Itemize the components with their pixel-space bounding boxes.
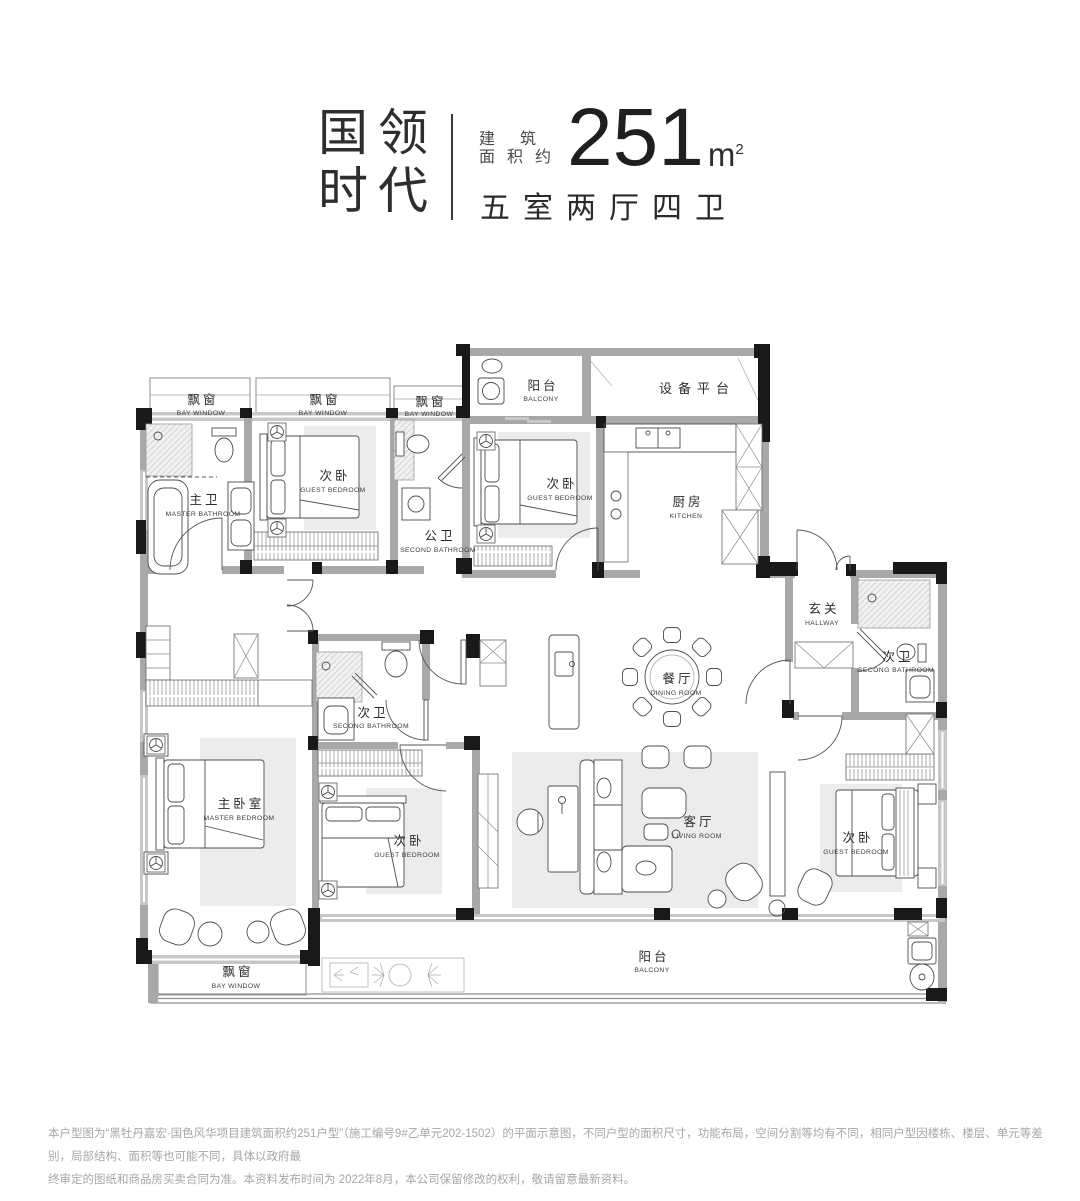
room-label-bay-window-b-en: BAY WINDOW (212, 983, 261, 990)
room-label-guest-bedroom-br-zh: 次卧 (842, 831, 873, 845)
ac-fan-icon (268, 519, 286, 537)
ac-fan-icon (319, 783, 337, 801)
room-label-bay-window-1-zh: 飘窗 (187, 393, 218, 407)
room-label-guest-bedroom-tc-en: GUEST BEDROOM (527, 495, 593, 502)
top-balcony-fixtures (478, 359, 504, 404)
room-label-bay-window-3-zh: 飘窗 (415, 395, 446, 409)
room-label-balcony-top-en: BALCONY (523, 396, 558, 403)
room-label-bay-window-3-en: BAY WINDOW (405, 411, 454, 418)
room-label-guest-bedroom-tl-zh: 次卧 (319, 469, 350, 483)
room-label-balcony-b-en: BALCONY (634, 967, 669, 974)
room-label-master-bathroom-zh: 主卫 (189, 493, 220, 507)
right-second-bathroom-fixtures (858, 580, 934, 702)
kitchen-fixtures (604, 424, 762, 564)
ac-fan-icon (477, 432, 495, 450)
room-label-guest-bedroom-br-en: GUEST BEDROOM (823, 849, 889, 856)
room-label-kitchen-en: KITCHEN (670, 513, 703, 520)
room-label-guest-bedroom-bc-en: GUEST BEDROOM (374, 852, 440, 859)
room-label-second-bathroom-r-en: SECONG BATHROOM (858, 667, 934, 674)
room-label-bay-window-b-zh: 飘窗 (222, 965, 253, 979)
room-label-dining-room-zh: 餐厅 (662, 671, 693, 686)
disclaimer-line1: 本户型图为“黑牡丹嘉宏·国色风华项目建筑面积约251户型”（施工编号9#乙单元2… (48, 1123, 1048, 1169)
ac-fan-icon (147, 854, 165, 872)
room-label-guest-bedroom-bc-zh: 次卧 (393, 834, 424, 848)
disclaimer: 本户型图为“黑牡丹嘉宏·国色风华项目建筑面积约251户型”（施工编号9#乙单元2… (48, 1123, 1048, 1192)
kitchen-island (549, 635, 579, 729)
room-label-bay-window-2-en: BAY WINDOW (299, 410, 348, 417)
room-label-guest-bedroom-tl-en: GUEST BEDROOM (300, 487, 366, 494)
room-label-dining-room-en: DINING ROOM (650, 690, 701, 697)
room-label-hallway-en: HALLWAY (805, 620, 839, 627)
balcony-end-fixtures (908, 922, 936, 990)
floor-plan-drawing: 飘窗 BAY WINDOW 飘窗 BAY WINDOW 飘窗 BAY WINDO… (0, 0, 1080, 1201)
room-label-guest-bedroom-tc-zh: 次卧 (546, 477, 577, 491)
room-label-public-bathroom-zh: 公卫 (424, 529, 455, 543)
room-label-balcony-top-zh: 阳台 (527, 378, 558, 393)
ac-fan-icon (147, 736, 165, 754)
ac-fan-icon (319, 881, 337, 899)
public-bathroom-fixtures (394, 420, 465, 520)
room-label-balcony-b-zh: 阳台 (638, 949, 669, 964)
room-label-living-room-en: LIVING ROOM (672, 833, 722, 840)
floor-plan-page: 国领 时代 建筑 面积约 251 m2 五室两厅四卫 (0, 0, 1080, 1201)
ac-fan-icon (268, 423, 286, 441)
ac-fan-icon (477, 525, 495, 543)
room-label-kitchen-zh: 厨房 (672, 494, 703, 509)
room-label-second-bathroom-l-en: SECONG BATHROOM (333, 723, 409, 730)
disclaimer-line2: 终审定的图纸和商品房买卖合同为准。本资料发布时间为 2022年8月，本公司保留修… (48, 1169, 1048, 1192)
room-label-public-bathroom-en: SECOND BATHROOM (400, 547, 476, 554)
room-label-equipment-platform-zh: 设备平台 (659, 381, 735, 396)
room-label-master-bedroom-zh: 主卧室 (218, 796, 265, 811)
room-label-master-bedroom-en: MASTER BEDROOM (204, 815, 275, 822)
master-bedroom-chairs (156, 906, 309, 949)
room-label-second-bathroom-l-zh: 次卫 (357, 706, 388, 720)
room-label-bay-window-1-en: BAY WINDOW (177, 410, 226, 417)
room-label-living-room-zh: 客厅 (683, 814, 714, 829)
room-label-bay-window-2-zh: 飘窗 (309, 393, 340, 407)
room-label-second-bathroom-r-zh: 次卫 (882, 650, 913, 664)
balcony-planter (322, 958, 464, 992)
room-label-master-bathroom-en: MASTER BATHROOM (166, 511, 241, 518)
room-label-hallway-zh: 玄关 (808, 601, 839, 616)
